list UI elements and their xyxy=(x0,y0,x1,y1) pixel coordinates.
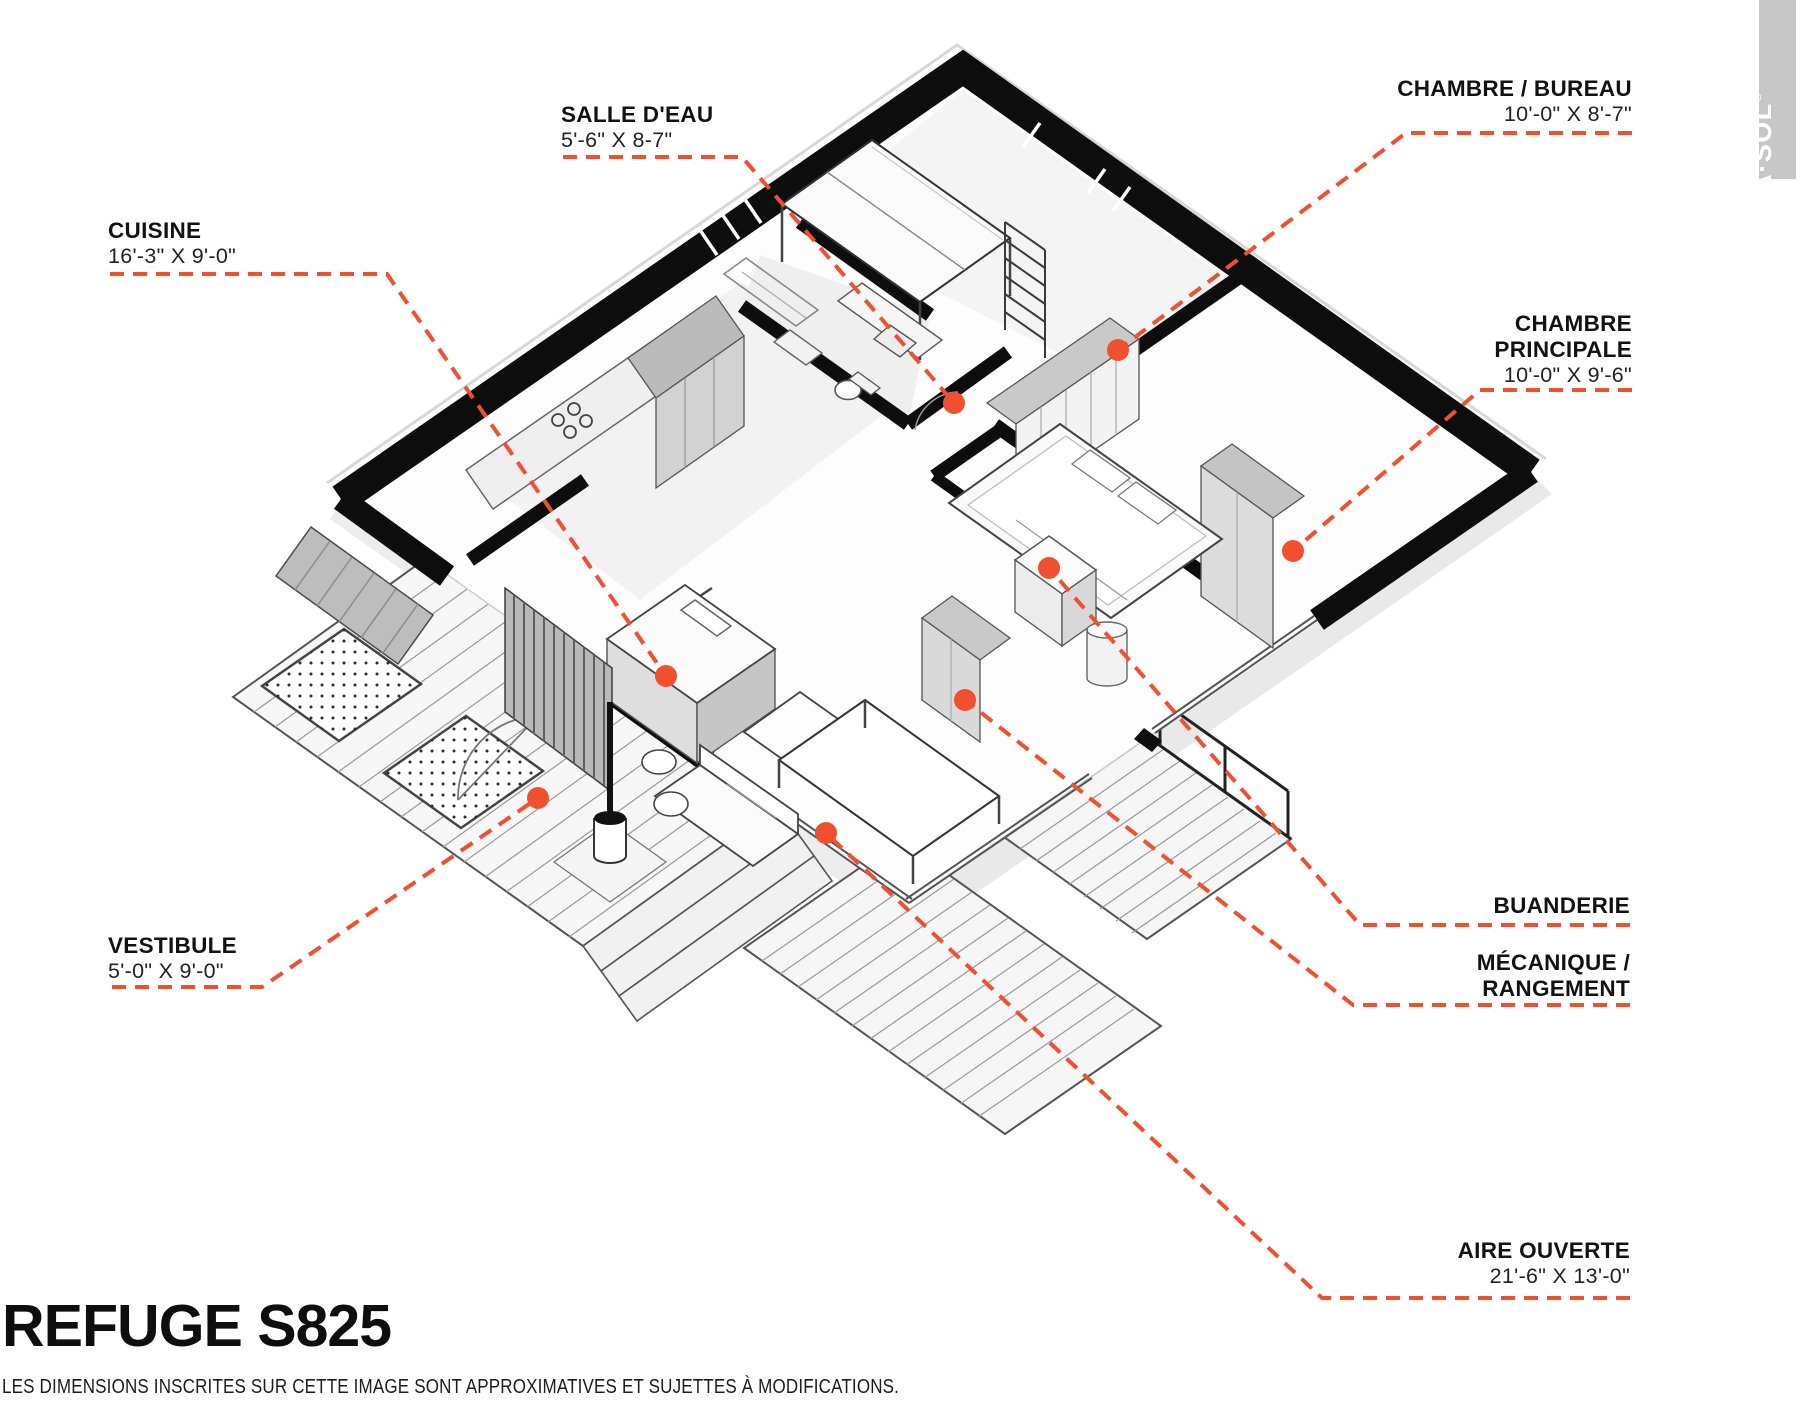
room-dims: 21'-6" X 13'-0" xyxy=(1458,1264,1630,1289)
room-dims: 5'-6" X 8-7" xyxy=(561,128,713,153)
floor-plan-page: CUISINE 16'-3" X 9'-0" SALLE D'EAU 5'-6"… xyxy=(0,0,1800,1405)
room-dims: 16'-3" X 9'-0" xyxy=(108,244,236,269)
room-label-aire-ouverte: AIRE OUVERTE 21'-6" X 13'-0" xyxy=(1458,1238,1630,1289)
room-name: CUISINE xyxy=(108,218,236,244)
room-name: SALLE D'EAU xyxy=(561,102,713,128)
disclaimer-text: LES DIMENSIONS INSCRITES SUR CETTE IMAGE… xyxy=(2,1376,899,1399)
brand-bar: PARA·SOL® xyxy=(1759,0,1796,179)
room-dims: 10'-0" X 8'-7" xyxy=(1397,102,1632,127)
room-name: AIRE OUVERTE xyxy=(1458,1238,1630,1264)
room-label-mecanique: MÉCANIQUE / RANGEMENT xyxy=(1440,950,1630,1002)
room-marker-mecanique xyxy=(954,689,976,711)
room-label-buanderie: BUANDERIE xyxy=(1494,893,1630,919)
room-name: CHAMBRE PRINCIPALE xyxy=(1480,311,1632,363)
room-marker-vestibule xyxy=(527,787,549,809)
pouf xyxy=(654,792,688,816)
room-dims: 10'-0" X 9'-6" xyxy=(1480,363,1632,388)
registered-mark-icon: ® xyxy=(1749,93,1764,103)
room-marker-cuisine xyxy=(655,665,677,687)
room-label-chambre-bureau: CHAMBRE / BUREAU 10'-0" X 8'-7" xyxy=(1397,76,1632,127)
room-marker-salle_deau xyxy=(943,392,965,414)
room-marker-buanderie xyxy=(1038,557,1060,579)
room-dims: 5'-0" X 9'-0" xyxy=(108,959,237,984)
brand-logo: PARA·SOL® xyxy=(1747,93,1778,254)
room-marker-chambre_principale xyxy=(1282,540,1304,562)
room-name: CHAMBRE / BUREAU xyxy=(1397,76,1632,102)
pouf xyxy=(642,750,676,774)
room-label-cuisine: CUISINE 16'-3" X 9'-0" xyxy=(108,218,236,269)
room-name: BUANDERIE xyxy=(1494,893,1630,919)
room-marker-chambre_bureau xyxy=(1107,339,1129,361)
room-label-vestibule: VESTIBULE 5'-0" X 9'-0" xyxy=(108,933,237,984)
room-label-chambre-principale: CHAMBRE PRINCIPALE 10'-0" X 9'-6" xyxy=(1480,311,1632,388)
floor-plan-rendering xyxy=(0,0,1800,1405)
room-label-salle-deau: SALLE D'EAU 5'-6" X 8-7" xyxy=(561,102,713,153)
page-title: REFUGE S825 xyxy=(2,1292,405,1364)
room-name: MÉCANIQUE / RANGEMENT xyxy=(1440,950,1630,1002)
room-name: VESTIBULE xyxy=(108,933,237,959)
room-marker-aire_ouverte xyxy=(815,822,837,844)
